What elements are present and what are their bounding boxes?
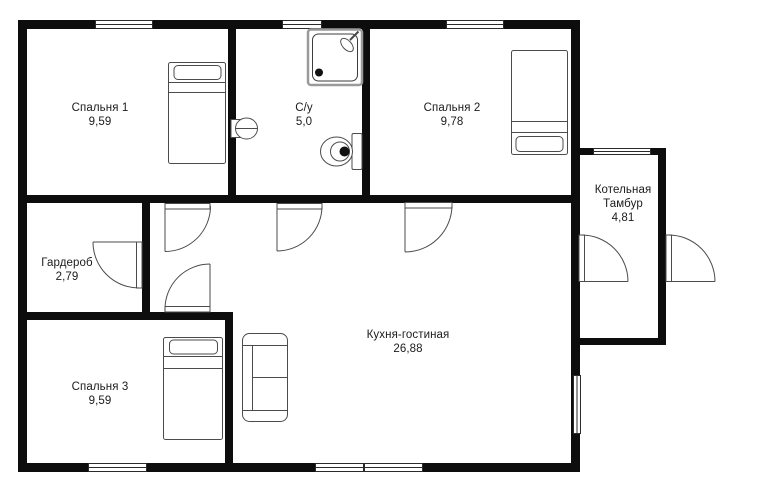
door-swing-icon <box>277 204 322 252</box>
door-swing-icon <box>165 204 211 252</box>
wall-wardrobe-right <box>142 203 150 312</box>
room-label-bedroom-3: Спальня 3 9,59 <box>72 380 129 408</box>
room-area: 4,81 <box>595 211 652 225</box>
wall-vestibule-right <box>658 148 666 345</box>
window-icon <box>447 21 504 29</box>
room-area: 5,0 <box>295 115 313 129</box>
room-area: 26,88 <box>367 342 450 356</box>
bed-icon <box>169 63 226 164</box>
bed-icon <box>512 51 568 155</box>
wall-bedroom3-top <box>27 312 233 320</box>
room-name: Котельная <box>595 183 652 197</box>
room-name: Спальня 2 <box>424 101 481 115</box>
room-name-2: Тамбур <box>595 197 652 211</box>
door-swing-icon <box>579 235 628 282</box>
floor-plan: Спальня 1 9,59 С/у 5,0 Спальня 2 9,78 Ко… <box>0 0 762 502</box>
door-swing-icon <box>93 242 142 288</box>
room-name: Спальня 3 <box>72 380 129 394</box>
room-label-bathroom: С/у 5,0 <box>295 101 313 129</box>
room-area: 9,78 <box>424 115 481 129</box>
room-area: 9,59 <box>72 115 129 129</box>
bed-icon <box>164 338 223 440</box>
room-label-boiler-vestibule: Котельная Тамбур 4,81 <box>595 183 652 225</box>
room-name: Спальня 1 <box>72 101 129 115</box>
door-swing-icon <box>405 203 452 253</box>
floor-plan-drawing <box>0 0 762 502</box>
room-name: Гардероб <box>41 256 92 270</box>
room-label-wardrobe: Гардероб 2,79 <box>41 256 92 284</box>
door-swing-icon <box>165 264 210 312</box>
room-label-bedroom-1: Спальня 1 9,59 <box>72 101 129 129</box>
room-name: С/у <box>295 101 313 115</box>
room-label-kitchen-living: Кухня-гостиная 26,88 <box>367 328 450 356</box>
window-icon <box>96 21 153 29</box>
room-area: 2,79 <box>41 270 92 284</box>
toilet-tank <box>352 134 362 170</box>
sofa-icon <box>243 334 288 422</box>
drain-dot <box>315 69 323 77</box>
room-area: 9,59 <box>72 394 129 408</box>
wall-exterior-left <box>18 20 27 472</box>
door-swing-icon <box>666 235 715 282</box>
wall-interior-horizontal <box>27 195 571 203</box>
room-name: Кухня-гостиная <box>367 328 450 342</box>
sink-icon <box>231 118 258 139</box>
wall-bedroom1-bathroom <box>228 29 236 195</box>
wall-vestibule-bottom <box>580 338 666 345</box>
toilet-icon <box>321 134 363 170</box>
window-icon <box>283 21 322 29</box>
shower-icon <box>308 30 362 86</box>
window-icon <box>316 464 423 472</box>
window-icon <box>89 464 147 472</box>
window-icon <box>594 149 651 155</box>
room-label-bedroom-2: Спальня 2 9,78 <box>424 101 481 129</box>
wall-bedroom3-right <box>225 312 233 463</box>
window-icon <box>574 376 581 434</box>
